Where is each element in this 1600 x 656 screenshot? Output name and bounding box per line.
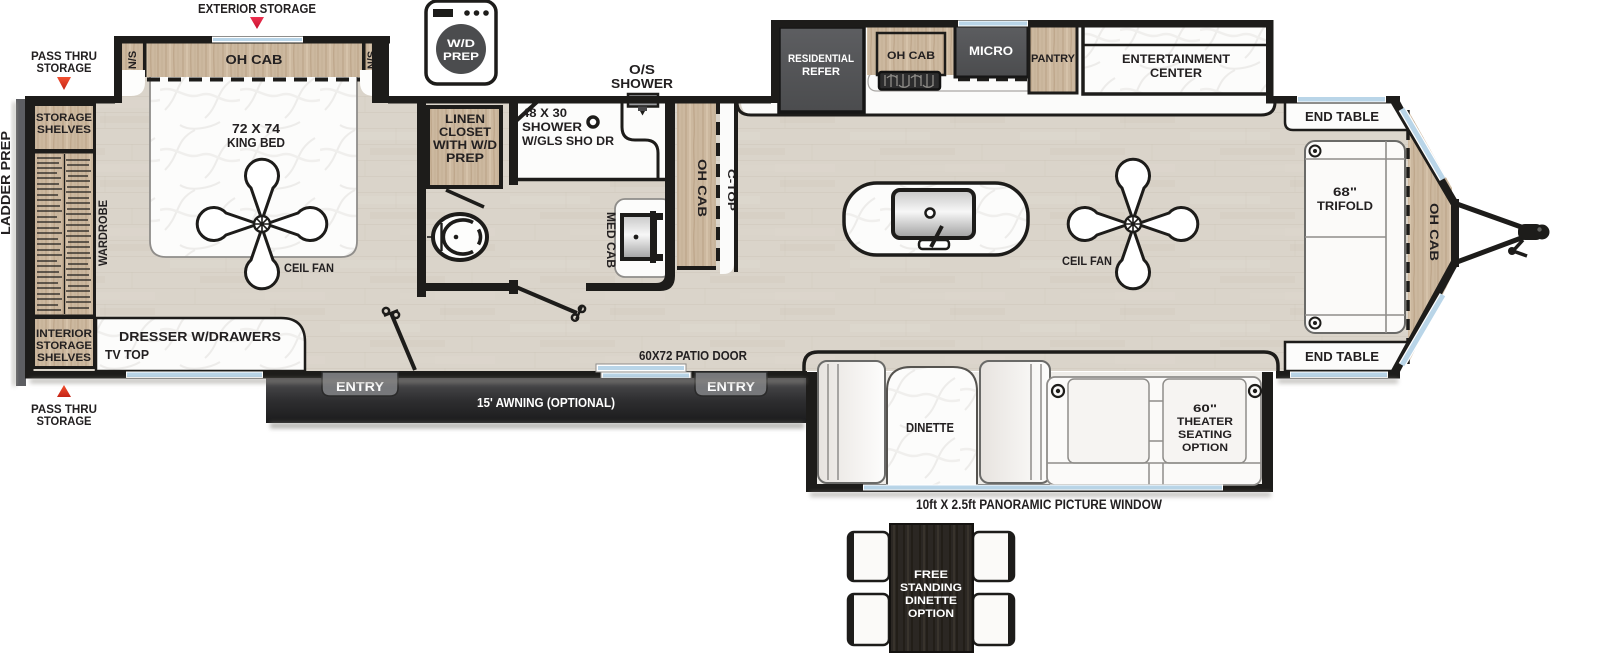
svg-text:KING BED: KING BED (227, 136, 285, 150)
svg-text:SHELVES: SHELVES (37, 352, 91, 364)
svg-text:WITH W/D: WITH W/D (433, 140, 497, 152)
svg-text:STORAGE: STORAGE (37, 63, 92, 75)
svg-text:DINETTE: DINETTE (906, 421, 954, 435)
svg-text:PASS THRU: PASS THRU (31, 404, 97, 416)
svg-text:THEATER: THEATER (1177, 416, 1233, 428)
svg-text:MICRO: MICRO (969, 44, 1013, 58)
svg-text:60": 60" (1193, 403, 1217, 415)
svg-text:O/S: O/S (629, 63, 655, 77)
svg-text:ENTERTAINMENT: ENTERTAINMENT (1122, 52, 1231, 66)
svg-text:OPTION: OPTION (908, 608, 954, 620)
svg-text:REFER: REFER (802, 66, 840, 78)
svg-text:DRESSER W/DRAWERS: DRESSER W/DRAWERS (119, 330, 281, 344)
svg-text:PANTRY: PANTRY (1031, 53, 1076, 65)
svg-text:68": 68" (1333, 185, 1357, 199)
svg-text:CLOSET: CLOSET (439, 127, 491, 139)
svg-text:CEIL FAN: CEIL FAN (1062, 256, 1112, 268)
svg-text:SHOWER: SHOWER (522, 120, 582, 134)
svg-text:DINETTE: DINETTE (905, 595, 957, 607)
svg-text:LADDER PREP: LADDER PREP (0, 131, 13, 235)
svg-text:OH CAB: OH CAB (695, 159, 709, 217)
svg-text:TV TOP: TV TOP (105, 348, 149, 362)
svg-text:STANDING: STANDING (900, 582, 962, 594)
svg-text:W/D: W/D (447, 38, 475, 50)
svg-text:MED CAB: MED CAB (604, 212, 616, 268)
svg-text:48 X 30: 48 X 30 (522, 106, 567, 120)
svg-text:CENTER: CENTER (1150, 66, 1202, 80)
svg-text:SHELVES: SHELVES (37, 124, 91, 136)
svg-text:SEATING: SEATING (1178, 429, 1232, 441)
svg-text:OPTION: OPTION (1182, 442, 1228, 454)
svg-text:STORAGE: STORAGE (36, 112, 92, 124)
svg-text:60X72 PATIO DOOR: 60X72 PATIO DOOR (639, 349, 747, 363)
svg-text:10ft X 2.5ft PANORAMIC PICTURE: 10ft X 2.5ft PANORAMIC PICTURE WINDOW (916, 497, 1162, 512)
svg-text:15' AWNING (OPTIONAL): 15' AWNING (OPTIONAL) (477, 396, 615, 410)
svg-text:END TABLE: END TABLE (1305, 350, 1379, 364)
svg-text:FREE: FREE (914, 569, 948, 581)
svg-text:SHOWER: SHOWER (611, 77, 673, 91)
svg-text:OH CAB: OH CAB (1427, 203, 1441, 261)
svg-text:RESIDENTIAL: RESIDENTIAL (788, 53, 854, 65)
svg-text:STORAGE: STORAGE (37, 416, 92, 428)
svg-text:END TABLE: END TABLE (1305, 110, 1379, 124)
svg-text:OH CAB: OH CAB (887, 50, 935, 62)
svg-text:STORAGE: STORAGE (36, 340, 92, 352)
svg-text:N/S: N/S (127, 51, 139, 69)
svg-text:TRIFOLD: TRIFOLD (1317, 199, 1373, 213)
svg-text:72 X 74: 72 X 74 (232, 122, 280, 136)
svg-text:PREP: PREP (443, 51, 479, 63)
svg-text:LINEN: LINEN (445, 114, 485, 126)
svg-text:W/GLS SHO DR: W/GLS SHO DR (522, 134, 614, 148)
svg-text:OH CAB: OH CAB (226, 53, 283, 67)
svg-text:EXTERIOR STORAGE: EXTERIOR STORAGE (198, 1, 316, 16)
svg-text:INTERIOR: INTERIOR (36, 328, 92, 340)
svg-text:PREP: PREP (446, 153, 484, 165)
svg-text:CEIL FAN: CEIL FAN (284, 263, 334, 275)
svg-text:PASS THRU: PASS THRU (31, 51, 97, 63)
svg-text:WARDROBE: WARDROBE (96, 200, 110, 266)
